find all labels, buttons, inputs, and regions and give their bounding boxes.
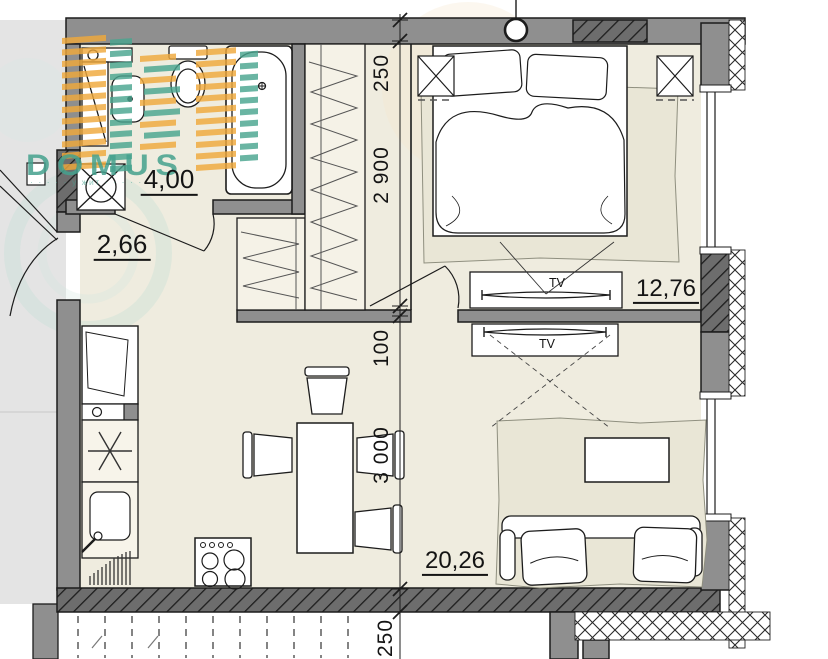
room-area-label-living: 20,26 <box>422 548 488 576</box>
nightstand-right <box>657 56 693 96</box>
room-area-label-bedroom: 12,76 <box>633 276 699 304</box>
kitchen-sink <box>82 482 138 558</box>
nightstand-left <box>418 56 454 96</box>
logo-tagline: · · · · · у жит · · · · · <box>30 177 143 187</box>
fridge <box>82 326 138 404</box>
dim-label-3000: 3 000 <box>370 426 394 484</box>
wall-bottom-hatched <box>57 588 720 612</box>
tv-label-living: TV <box>539 337 555 351</box>
right-pier-hatched <box>701 252 731 332</box>
dim-label-250-top: 250 <box>370 54 394 92</box>
balcony-glazing <box>78 616 348 658</box>
dim-label-100: 100 <box>370 329 394 367</box>
bedroom-window <box>701 89 731 251</box>
tall-wardrobe <box>305 44 365 310</box>
room-area-label-bathroom: 4,00 <box>141 166 198 196</box>
axis-marker <box>505 0 527 41</box>
pillow <box>526 54 608 100</box>
cabinet-star <box>82 420 138 482</box>
floor-plan: DOMUS · · · · · у жит · · · · · 4,00 2,6… <box>0 0 828 659</box>
living-window <box>701 396 731 518</box>
room-area-label-hallway: 2,66 <box>94 231 151 261</box>
chair <box>305 367 349 414</box>
floor-plan-drawing <box>0 0 828 659</box>
wall-hatched-segment-top <box>573 20 647 42</box>
dining-table <box>297 423 353 553</box>
dim-label-2900: 2 900 <box>370 146 394 204</box>
coffee-table <box>585 438 669 482</box>
dim-label-250-bottom: 250 <box>374 619 398 657</box>
tv-label-bedroom: TV <box>549 276 565 290</box>
chair <box>243 432 292 478</box>
chair <box>355 505 402 553</box>
duvet <box>436 104 625 233</box>
kitchen-wall-stub <box>124 404 138 420</box>
hall-closet <box>237 218 305 310</box>
logo-tower <box>140 53 180 150</box>
stove <box>195 538 251 589</box>
